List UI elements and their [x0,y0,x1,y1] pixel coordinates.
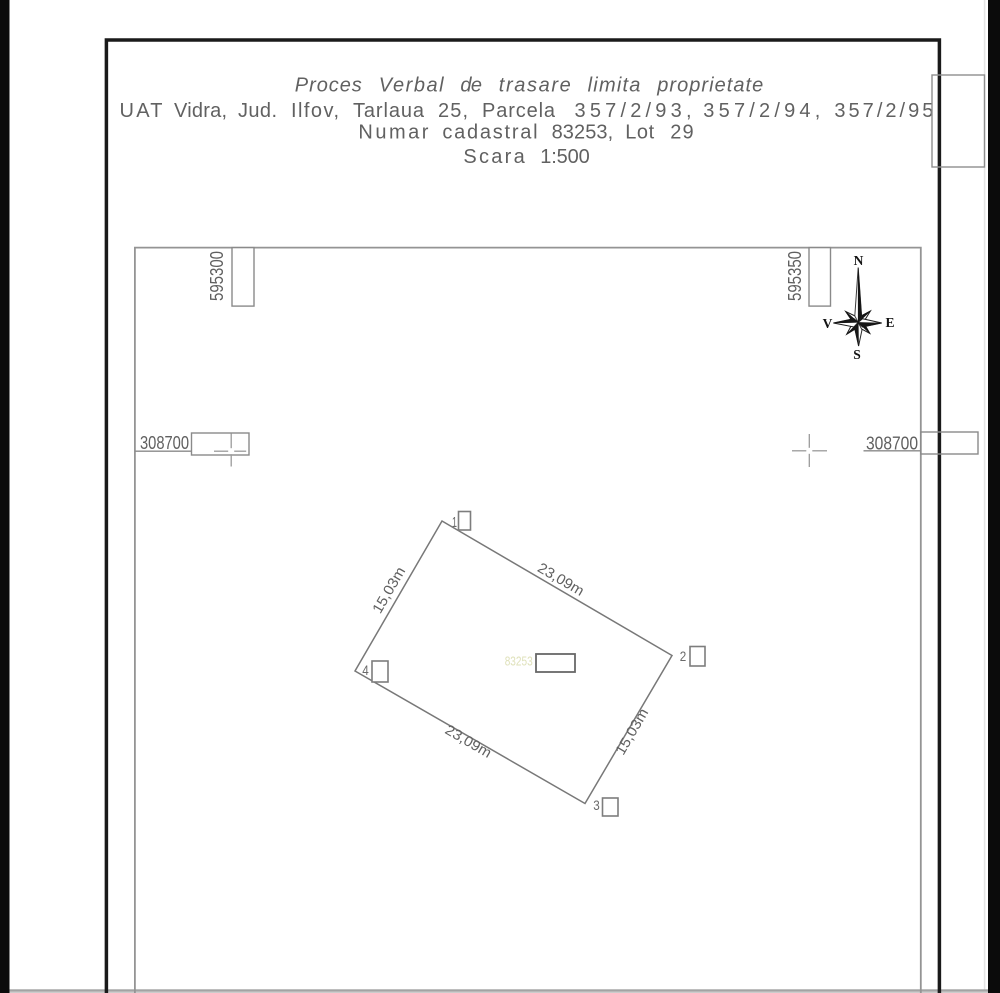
svg-text:Vidra,: Vidra, [174,100,227,122]
svg-text:Verbal: Verbal [379,74,444,96]
svg-text:S: S [853,347,861,362]
svg-text:Tarlaua: Tarlaua [353,100,425,122]
svg-text:Scara: Scara [463,146,525,168]
svg-text:3: 3 [593,798,600,813]
svg-text:Parcela: Parcela [482,100,556,122]
svg-text:N: N [854,253,864,268]
svg-text:Numar: Numar [358,121,428,143]
svg-text:Proces: Proces [295,74,362,96]
svg-text:1: 1 [452,514,457,531]
svg-text:83253: 83253 [505,654,533,668]
svg-text:Ilfov,: Ilfov, [291,100,339,122]
svg-text:cadastral: cadastral [442,121,537,143]
svg-text:Lot: Lot [625,121,654,143]
svg-text:V: V [823,316,833,331]
svg-text:limita: limita [588,74,641,96]
svg-text:83253,: 83253, [552,121,614,143]
svg-text:357/2/94,: 357/2/94, [703,100,820,122]
svg-text:E: E [885,315,894,330]
svg-text:2: 2 [680,649,687,664]
svg-text:308700: 308700 [140,433,189,453]
svg-text:357/2/93,: 357/2/93, [575,100,692,122]
svg-text:UAT: UAT [120,100,163,122]
svg-text:29: 29 [670,121,693,143]
svg-text:de: de [460,74,482,96]
svg-text:595350: 595350 [785,251,805,301]
svg-text:proprietate: proprietate [656,74,763,96]
svg-text:trasare: trasare [499,74,571,96]
svg-text:595300: 595300 [207,251,227,301]
svg-text:25,: 25, [438,100,468,122]
svg-text:4: 4 [362,663,369,678]
svg-text:1:500: 1:500 [540,146,590,168]
svg-text:Jud.: Jud. [238,100,277,122]
